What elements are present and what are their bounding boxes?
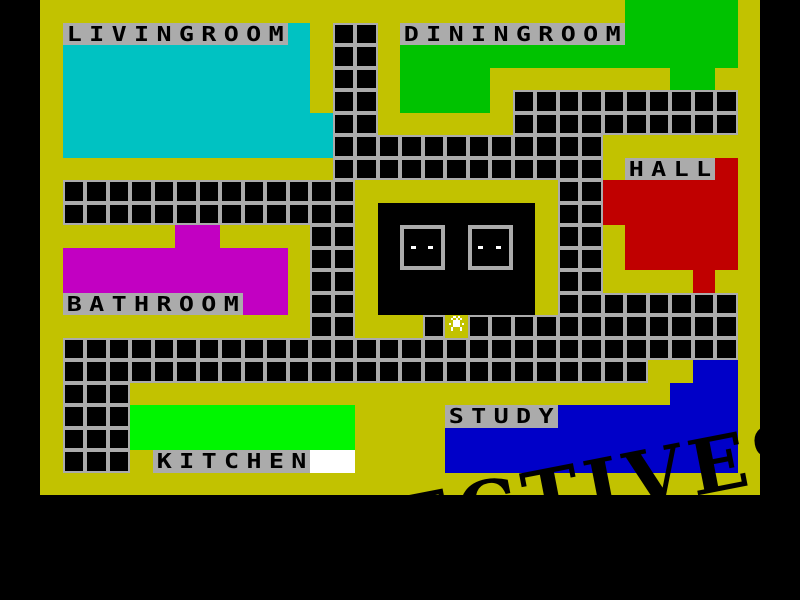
corridor-tile xyxy=(558,270,581,293)
kitchen-white-area xyxy=(310,450,355,473)
room-label-bathroom: BATHROOM xyxy=(63,293,243,316)
corridor-tile xyxy=(130,180,153,203)
room-livingroom xyxy=(63,113,333,158)
corridor-tile xyxy=(333,90,356,113)
room-hall xyxy=(715,158,738,181)
corridor-tile xyxy=(445,338,468,361)
corridor-tile xyxy=(400,338,423,361)
room-label-livingroom: LIVINGROOM xyxy=(63,23,288,46)
corridor-tile xyxy=(378,338,401,361)
corridor-tile xyxy=(63,383,86,406)
corridor-tile xyxy=(445,158,468,181)
corridor-tile xyxy=(445,360,468,383)
corridor-tile xyxy=(175,203,198,226)
room-bathroom xyxy=(63,248,288,293)
corridor-tile xyxy=(580,270,603,293)
corridor-tile xyxy=(603,113,626,136)
corridor-tile xyxy=(108,180,131,203)
corridor-tile xyxy=(198,360,221,383)
corridor-tile xyxy=(310,248,333,271)
corridor-tile xyxy=(108,450,131,473)
corridor-tile xyxy=(513,90,536,113)
corridor-tile xyxy=(648,293,671,316)
corridor-tile xyxy=(603,360,626,383)
corridor-tile xyxy=(333,45,356,68)
corridor-tile xyxy=(468,360,491,383)
corridor-tile xyxy=(378,360,401,383)
corridor-tile xyxy=(63,405,86,428)
corridor-tile xyxy=(333,203,356,226)
corridor-tile xyxy=(355,135,378,158)
room-livingroom xyxy=(63,45,311,113)
corridor-tile xyxy=(558,135,581,158)
corridor-tile xyxy=(490,135,513,158)
corridor-tile xyxy=(603,338,626,361)
corridor-tile xyxy=(108,428,131,451)
corridor-tile xyxy=(85,180,108,203)
corridor-tile xyxy=(558,338,581,361)
corridor-tile xyxy=(265,360,288,383)
corridor-tile xyxy=(490,360,513,383)
corridor-tile xyxy=(648,113,671,136)
corridor-tile xyxy=(558,293,581,316)
corridor-tile xyxy=(153,180,176,203)
room-label-text-hall: HALL xyxy=(625,158,715,181)
corridor-tile xyxy=(580,90,603,113)
window-dot xyxy=(411,246,416,249)
corridor-tile xyxy=(63,360,86,383)
corridor-tile xyxy=(513,360,536,383)
corridor-tile xyxy=(670,113,693,136)
house-map: LIVINGROOMDININGROOMHALLBATHROOMKITCHENS… xyxy=(40,0,760,495)
corridor-tile xyxy=(355,113,378,136)
room-kitchen xyxy=(130,405,355,450)
corridor-tile xyxy=(715,113,738,136)
room-label-kitchen: KITCHEN xyxy=(153,450,311,473)
room-hall xyxy=(693,270,716,293)
room-label-diningroom: DININGROOM xyxy=(400,23,625,46)
corridor-tile xyxy=(333,180,356,203)
corridor-tile xyxy=(580,135,603,158)
window-dot xyxy=(428,246,433,249)
corridor-tile xyxy=(333,23,356,46)
corridor-tile xyxy=(153,360,176,383)
corridor-tile xyxy=(490,158,513,181)
corridor-tile xyxy=(108,203,131,226)
corridor-tile xyxy=(198,338,221,361)
corridor-tile xyxy=(648,90,671,113)
corridor-tile xyxy=(220,203,243,226)
corridor-tile xyxy=(670,315,693,338)
corridor-tile xyxy=(468,158,491,181)
corridor-tile xyxy=(715,90,738,113)
corridor-tile xyxy=(310,270,333,293)
corridor-tile xyxy=(603,315,626,338)
corridor-tile xyxy=(625,113,648,136)
corridor-tile xyxy=(85,428,108,451)
room-bathroom xyxy=(243,293,288,316)
corridor-tile xyxy=(603,90,626,113)
corridor-tile xyxy=(63,450,86,473)
corridor-tile xyxy=(558,90,581,113)
corridor-tile xyxy=(288,203,311,226)
corridor-tile xyxy=(333,158,356,181)
corridor-tile xyxy=(423,360,446,383)
corridor-tile xyxy=(85,405,108,428)
corridor-tile xyxy=(198,180,221,203)
corridor-tile xyxy=(535,338,558,361)
corridor-tile xyxy=(580,315,603,338)
room-bathroom xyxy=(175,225,220,248)
corridor-tile xyxy=(153,203,176,226)
corridor-tile xyxy=(243,203,266,226)
corridor-tile xyxy=(445,135,468,158)
room-window-icon xyxy=(468,225,513,270)
corridor-tile xyxy=(355,360,378,383)
corridor-tile xyxy=(310,225,333,248)
corridor-tile xyxy=(310,338,333,361)
corridor-tile xyxy=(243,180,266,203)
corridor-tile xyxy=(333,225,356,248)
corridor-tile xyxy=(400,135,423,158)
corridor-tile xyxy=(355,158,378,181)
corridor-tile xyxy=(310,315,333,338)
corridor-tile xyxy=(85,203,108,226)
corridor-tile xyxy=(108,338,131,361)
corridor-tile xyxy=(625,338,648,361)
corridor-tile xyxy=(198,203,221,226)
corridor-tile xyxy=(333,293,356,316)
corridor-tile xyxy=(153,338,176,361)
corridor-tile xyxy=(670,90,693,113)
window-dot xyxy=(478,246,483,249)
corridor-tile xyxy=(175,360,198,383)
corridor-tile xyxy=(288,338,311,361)
corridor-tile xyxy=(513,338,536,361)
corridor-tile xyxy=(85,338,108,361)
corridor-tile xyxy=(693,315,716,338)
room-livingroom xyxy=(288,23,311,46)
corridor-tile xyxy=(265,180,288,203)
corridor-tile xyxy=(243,338,266,361)
corridor-tile xyxy=(63,428,86,451)
corridor-tile xyxy=(558,360,581,383)
corridor-tile xyxy=(333,68,356,91)
corridor-tile xyxy=(625,293,648,316)
corridor-tile xyxy=(648,338,671,361)
corridor-tile xyxy=(468,135,491,158)
room-diningroom xyxy=(400,45,738,68)
corridor-tile xyxy=(400,360,423,383)
corridor-tile xyxy=(265,338,288,361)
window-dot xyxy=(496,246,501,249)
room-study xyxy=(693,360,738,383)
corridor-tile xyxy=(265,203,288,226)
corridor-tile xyxy=(580,293,603,316)
corridor-tile xyxy=(580,338,603,361)
corridor-tile xyxy=(535,90,558,113)
corridor-tile xyxy=(490,315,513,338)
room-hall xyxy=(625,225,738,270)
corridor-tile xyxy=(400,158,423,181)
corridor-tile xyxy=(63,180,86,203)
player-sprite xyxy=(449,316,465,332)
corridor-tile xyxy=(558,158,581,181)
corridor-tile xyxy=(333,270,356,293)
corridor-tile xyxy=(220,338,243,361)
corridor-tile xyxy=(580,225,603,248)
corridor-tile xyxy=(355,90,378,113)
corridor-tile xyxy=(513,113,536,136)
corridor-tile xyxy=(288,180,311,203)
corridor-tile xyxy=(355,45,378,68)
corridor-tile xyxy=(85,450,108,473)
game-screen: LIVINGROOMDININGROOMHALLBATHROOMKITCHENS… xyxy=(0,0,800,600)
corridor-tile xyxy=(625,90,648,113)
corridor-tile xyxy=(558,113,581,136)
corridor-tile xyxy=(715,293,738,316)
corridor-tile xyxy=(580,248,603,271)
corridor-tile xyxy=(310,293,333,316)
room-label-text-livingroom: LIVINGROOM xyxy=(63,23,288,46)
corridor-tile xyxy=(468,338,491,361)
room-label-text-diningroom: DININGROOM xyxy=(400,23,625,46)
corridor-tile xyxy=(558,248,581,271)
corridor-tile xyxy=(535,360,558,383)
door-tile xyxy=(423,315,446,338)
corridor-tile xyxy=(490,338,513,361)
corridor-tile xyxy=(220,360,243,383)
corridor-tile xyxy=(355,68,378,91)
corridor-tile xyxy=(580,113,603,136)
corridor-tile xyxy=(175,338,198,361)
corridor-tile xyxy=(85,383,108,406)
corridor-tile xyxy=(670,338,693,361)
corridor-tile xyxy=(603,293,626,316)
room-study xyxy=(670,383,738,406)
room-label-text-study: STUDY xyxy=(445,405,558,428)
corridor-tile xyxy=(130,360,153,383)
room-diningroom xyxy=(670,68,715,91)
corridor-tile xyxy=(243,360,266,383)
corridor-tile xyxy=(355,338,378,361)
corridor-tile xyxy=(715,338,738,361)
corridor-tile xyxy=(310,180,333,203)
corridor-tile xyxy=(670,293,693,316)
room-label-study: STUDY xyxy=(445,405,558,428)
corridor-tile xyxy=(355,23,378,46)
corridor-tile xyxy=(625,315,648,338)
corridor-tile xyxy=(85,360,108,383)
corridor-tile xyxy=(715,315,738,338)
corridor-tile xyxy=(513,135,536,158)
corridor-tile xyxy=(310,360,333,383)
corridor-tile xyxy=(333,338,356,361)
corridor-tile xyxy=(625,360,648,383)
corridor-tile xyxy=(693,293,716,316)
corridor-tile xyxy=(558,315,581,338)
corridor-tile xyxy=(558,180,581,203)
corridor-tile xyxy=(333,315,356,338)
corridor-tile xyxy=(288,360,311,383)
corridor-tile xyxy=(693,90,716,113)
corridor-tile xyxy=(130,338,153,361)
corridor-tile xyxy=(513,158,536,181)
corridor-tile xyxy=(423,135,446,158)
room-diningroom xyxy=(625,0,738,45)
corridor-tile xyxy=(378,158,401,181)
corridor-tile xyxy=(535,113,558,136)
room-diningroom xyxy=(400,68,490,113)
corridor-tile xyxy=(423,158,446,181)
corridor-tile xyxy=(580,203,603,226)
corridor-tile xyxy=(310,203,333,226)
room-window-icon xyxy=(400,225,445,270)
corridor-tile xyxy=(378,135,401,158)
corridor-tile xyxy=(693,113,716,136)
corridor-tile xyxy=(130,203,153,226)
room-label-hall: HALL xyxy=(625,158,715,181)
corridor-tile xyxy=(580,360,603,383)
corridor-tile xyxy=(558,225,581,248)
corridor-tile xyxy=(220,180,243,203)
corridor-tile xyxy=(513,315,536,338)
corridor-tile xyxy=(423,338,446,361)
corridor-tile xyxy=(175,180,198,203)
corridor-tile xyxy=(108,405,131,428)
corridor-tile xyxy=(693,338,716,361)
corridor-tile xyxy=(580,180,603,203)
corridor-tile xyxy=(535,135,558,158)
corridor-tile xyxy=(558,203,581,226)
corridor-tile xyxy=(535,158,558,181)
corridor-tile xyxy=(333,113,356,136)
corridor-tile xyxy=(63,338,86,361)
corridor-tile xyxy=(333,248,356,271)
corridor-tile xyxy=(468,315,491,338)
room-hall xyxy=(603,180,738,225)
corridor-tile xyxy=(535,315,558,338)
corridor-tile xyxy=(333,135,356,158)
room-label-text-kitchen: KITCHEN xyxy=(153,450,311,473)
corridor-tile xyxy=(108,360,131,383)
corridor-tile xyxy=(333,360,356,383)
corridor-tile xyxy=(580,158,603,181)
room-label-text-bathroom: BATHROOM xyxy=(63,293,243,316)
corridor-tile xyxy=(63,203,86,226)
corridor-tile xyxy=(108,383,131,406)
corridor-tile xyxy=(648,315,671,338)
